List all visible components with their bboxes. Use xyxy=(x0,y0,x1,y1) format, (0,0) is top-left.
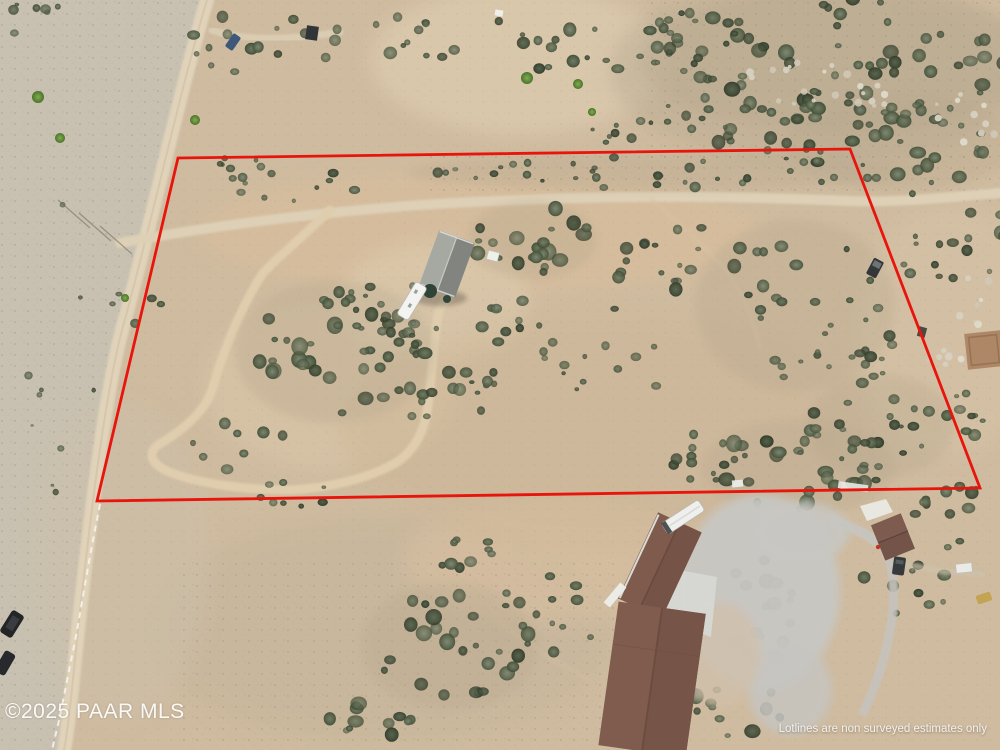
aerial-photo-canvas xyxy=(0,0,1000,750)
dark-tree-small xyxy=(443,295,451,303)
small-trailer-white-2 xyxy=(732,480,744,488)
graded-dirt-pad xyxy=(964,330,1000,370)
dark-structure-top xyxy=(305,25,319,41)
disclaimer-watermark: Lotlines are non surveyed estimates only xyxy=(779,723,987,735)
copyright-watermark: ©2025 PAAR MLS xyxy=(5,700,185,724)
parked-vehicle-dark xyxy=(892,556,906,575)
small-trailer-white xyxy=(956,563,973,574)
aerial-photo: ©2025 PAAR MLS Lotlines are non surveyed… xyxy=(0,0,1000,750)
red-atv xyxy=(876,545,880,549)
